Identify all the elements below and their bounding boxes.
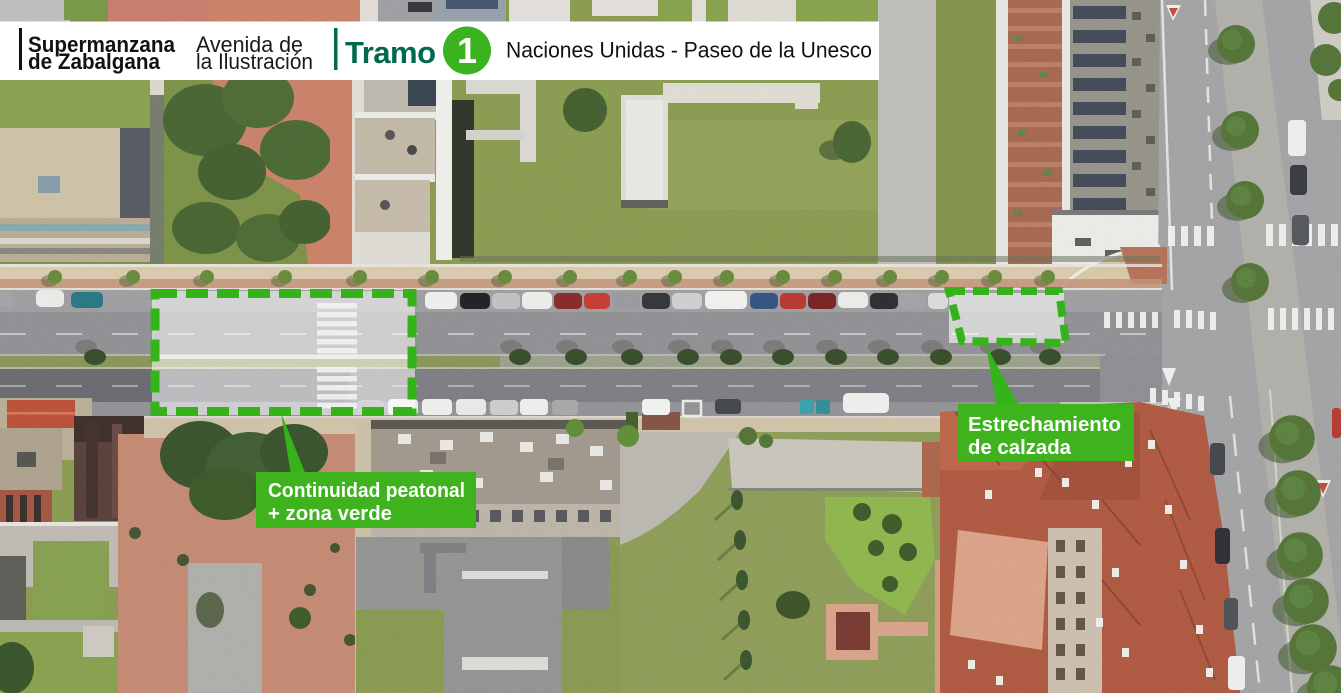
svg-text:Naciones Unidas - Paseo de la: Naciones Unidas - Paseo de la Unesco bbox=[506, 38, 872, 63]
svg-text:de Zabalgana: de Zabalgana bbox=[28, 49, 160, 74]
svg-text:Tramo: Tramo bbox=[345, 35, 436, 70]
svg-text:1: 1 bbox=[457, 30, 477, 71]
svg-text:de calzada: de calzada bbox=[968, 437, 1072, 459]
svg-text:Estrechamiento: Estrechamiento bbox=[968, 414, 1121, 436]
svg-text:la Ilustración: la Ilustración bbox=[196, 49, 313, 74]
svg-text:Continuidad peatonal: Continuidad peatonal bbox=[268, 480, 465, 502]
svg-text:+ zona verde: + zona verde bbox=[268, 503, 392, 525]
